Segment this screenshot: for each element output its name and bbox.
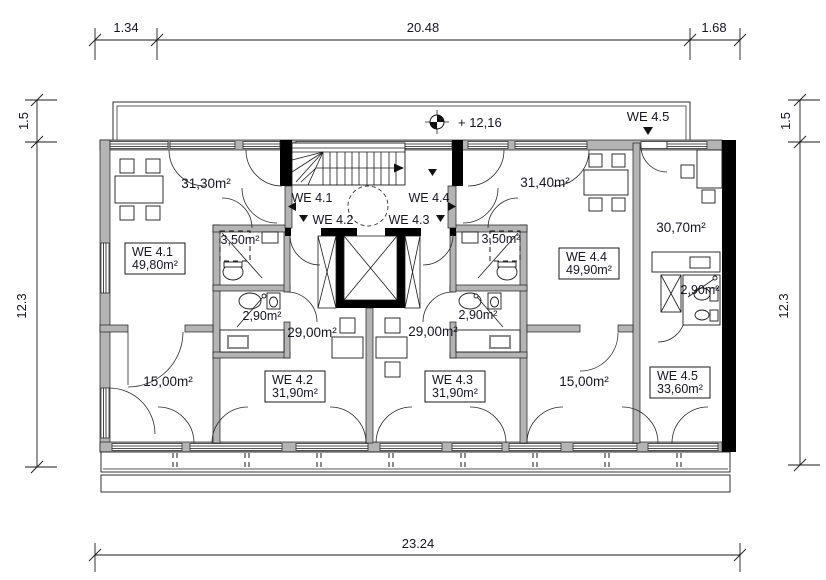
dim-right-top: 1.5 — [778, 112, 793, 130]
building: WE 4.1 WE 4.2 WE 4.4 WE 4.3 — [100, 140, 736, 452]
entry-door-we45 — [641, 142, 667, 149]
shaft-right — [405, 236, 420, 308]
unit-box-we41: WE 4.1 49,80m² — [125, 243, 185, 274]
dimension-ticks-right — [788, 94, 820, 471]
kitchen-niche-we43 — [456, 330, 520, 352]
landing-label-we42: WE 4.2 — [313, 213, 354, 227]
unit-id-we42: WE 4.2 — [272, 373, 313, 387]
room-label-bath-left: 3,50m² — [221, 233, 260, 247]
dimension-chain-top: 1.34 20.48 1.68 — [89, 20, 746, 60]
floor-plan-drawing: 1.34 20.48 1.68 1.5 12.3 1.5 12.3 23.24 — [0, 0, 826, 580]
window — [101, 388, 109, 438]
unit-box-we42: WE 4.2 31,90m² — [265, 371, 325, 402]
room-label-living-we45: 30,70m² — [656, 220, 706, 235]
dim-left-top: 1.5 — [16, 112, 31, 130]
window — [296, 444, 368, 451]
room-label-bedroom-left: 15,00m² — [143, 374, 193, 389]
exterior-wall-right-black — [722, 140, 736, 452]
window — [667, 142, 707, 149]
room-label-living-left: 31,30m² — [181, 176, 231, 191]
elevator — [318, 228, 420, 308]
room-label-studio-we43: 29,00m² — [408, 324, 458, 339]
room-label-shower-we42: 2,90m² — [243, 309, 282, 323]
dim-left-side: 12.3 — [14, 293, 29, 318]
unit-area-we41: 49,80m² — [132, 258, 178, 272]
window — [452, 444, 502, 451]
room-label-living-right: 31,40m² — [520, 175, 570, 190]
unit-id-we41: WE 4.1 — [132, 245, 173, 259]
window — [101, 243, 109, 293]
dim-top-left: 1.34 — [113, 20, 138, 35]
room-label-bedroom-right: 15,00m² — [559, 374, 609, 389]
dimension-ticks-left — [25, 94, 57, 473]
kitchen-counter-we45 — [652, 252, 720, 272]
unit-box-we45: WE 4.5 33,60m² — [650, 367, 710, 398]
window — [380, 444, 442, 451]
stair-pier-left — [280, 140, 292, 186]
stair-pier-right — [452, 140, 463, 186]
shaft-left — [318, 236, 336, 308]
room-label-shower-we45: 2,90m² — [681, 283, 720, 297]
window — [573, 444, 637, 451]
balcony — [101, 452, 730, 492]
unit-box-we43: WE 4.3 31,90m² — [425, 371, 485, 402]
room-label-bath-right: 3,50m² — [482, 232, 521, 246]
wardrobe-we45 — [661, 275, 681, 312]
dimension-chain-right: 1.5 12.3 — [776, 94, 820, 471]
window — [112, 444, 182, 451]
bottom-windows — [112, 444, 718, 451]
dim-top-middle: 20.48 — [407, 20, 440, 35]
elevator-car — [344, 236, 397, 300]
dimension-chain-bottom: 23.24 — [89, 536, 746, 572]
landing-label-we44: WE 4.4 — [409, 191, 450, 205]
unit-area-we44: 49,90m² — [566, 263, 612, 277]
floor-plan-page: 1.34 20.48 1.68 1.5 12.3 1.5 12.3 23.24 — [0, 0, 826, 580]
unit-area-we42: 31,90m² — [272, 386, 318, 400]
window — [190, 444, 282, 451]
stairs — [292, 143, 405, 185]
balcony-slab-edge — [101, 475, 730, 492]
unit-box-we44: WE 4.4 49,90m² — [559, 248, 619, 279]
window — [170, 142, 235, 149]
landing-label-we43: WE 4.3 — [389, 213, 430, 227]
dimension-chain-left: 1.5 12.3 — [14, 94, 57, 473]
unit-area-we45: 33,60m² — [657, 382, 703, 396]
window — [110, 142, 168, 149]
room-label-studio-we42: 29,00m² — [287, 325, 337, 340]
window — [468, 142, 508, 149]
window — [648, 444, 718, 451]
level-height-text: + 12,16 — [458, 115, 502, 130]
unit-id-we44: WE 4.4 — [566, 250, 607, 264]
unit-id-we45: WE 4.5 — [657, 369, 698, 383]
landing-label-we41: WE 4.1 — [292, 191, 333, 205]
dim-bottom: 23.24 — [402, 536, 435, 551]
window — [515, 142, 587, 149]
we45-entry-text: WE 4.5 — [627, 109, 670, 124]
dim-right-side: 12.3 — [776, 293, 791, 318]
unit-area-we43: 31,90m² — [432, 386, 478, 400]
window — [243, 142, 280, 149]
window — [509, 444, 561, 451]
unit-id-we43: WE 4.3 — [432, 373, 473, 387]
dim-top-right: 1.68 — [701, 20, 726, 35]
room-label-shower-we43: 2,90m² — [459, 308, 498, 322]
kitchen-niche-we42 — [220, 330, 284, 352]
